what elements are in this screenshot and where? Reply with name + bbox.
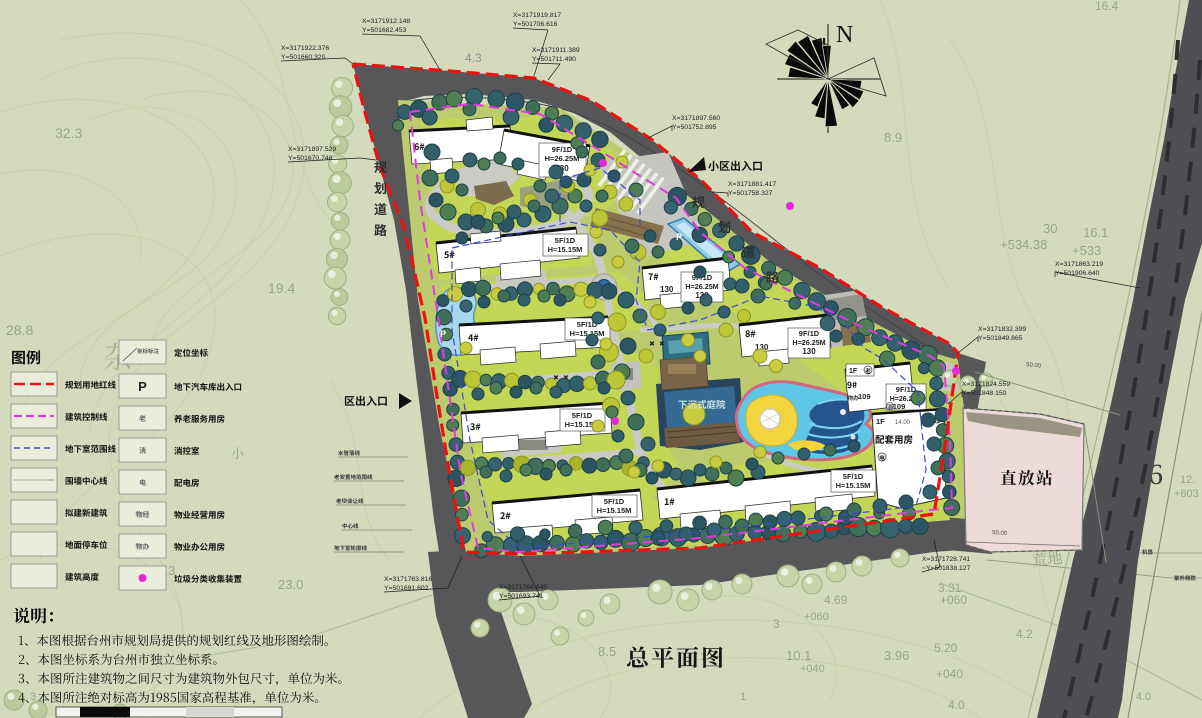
svg-text:Y=501752.895: Y=501752.895 — [672, 124, 717, 131]
svg-text:H=26.25M: H=26.25M — [685, 282, 718, 291]
svg-text:Y=501758.327: Y=501758.327 — [728, 190, 773, 197]
svg-text:130: 130 — [802, 347, 816, 356]
svg-text:X=3171922.376: X=3171922.376 — [281, 45, 329, 52]
svg-text:19.4: 19.4 — [268, 280, 295, 296]
svg-text:30: 30 — [1043, 221, 1057, 236]
svg-text:H=26.25M: H=26.25M — [792, 338, 825, 347]
svg-text:N: N — [836, 22, 853, 48]
svg-text:4.0: 4.0 — [948, 698, 965, 712]
svg-text:X=3171764.645: X=3171764.645 — [499, 584, 547, 591]
svg-text:5F/1D: 5F/1D — [843, 472, 864, 481]
svg-text:5F/1D: 5F/1D — [555, 236, 576, 245]
svg-text:+533: +533 — [1072, 243, 1101, 258]
svg-text:X=3171897.529: X=3171897.529 — [288, 146, 336, 153]
svg-text:X=3171832.399: X=3171832.399 — [978, 326, 1026, 333]
svg-text:4.2: 4.2 — [1016, 627, 1033, 641]
svg-text:✖: ✖ — [649, 341, 655, 348]
svg-text:~Y=501838.127: ~Y=501838.127 — [922, 565, 971, 572]
svg-text:✖: ✖ — [659, 341, 665, 348]
svg-text:Y=501706.616: Y=501706.616 — [513, 21, 558, 28]
svg-text:3.96: 3.96 — [884, 648, 909, 663]
svg-text:5F/1D: 5F/1D — [572, 411, 593, 420]
svg-text:Y=501711.490: Y=501711.490 — [532, 56, 576, 63]
svg-text:50.00: 50.00 — [992, 530, 1008, 537]
svg-text:X=3171911.389: X=3171911.389 — [532, 47, 580, 54]
svg-text:+040: +040 — [936, 667, 963, 681]
svg-text:23.0: 23.0 — [278, 577, 303, 592]
svg-text:8.5: 8.5 — [598, 644, 616, 659]
svg-text:+060: +060 — [940, 593, 967, 607]
svg-text:28.8: 28.8 — [6, 322, 33, 338]
svg-text:P: P — [676, 232, 682, 242]
svg-text:X=3171824.559: X=3171824.559 — [962, 381, 1010, 388]
svg-text:1F: 1F — [876, 417, 885, 426]
svg-text:H=15.15M: H=15.15M — [836, 481, 871, 490]
svg-text:1F: 1F — [849, 368, 858, 375]
svg-text:9F/1D: 9F/1D — [799, 329, 820, 338]
svg-text:16.1: 16.1 — [1083, 225, 1108, 240]
svg-text:10.1: 10.1 — [786, 648, 811, 663]
svg-text:+060: +060 — [804, 611, 829, 623]
svg-text:32.3: 32.3 — [55, 125, 82, 141]
svg-text:109: 109 — [858, 392, 871, 401]
svg-text:X=3171863.219: X=3171863.219 — [1055, 261, 1103, 268]
svg-text:5.20: 5.20 — [934, 641, 958, 655]
svg-text:16.4: 16.4 — [1095, 0, 1119, 13]
svg-text:4.3: 4.3 — [465, 51, 482, 65]
svg-text:109: 109 — [893, 402, 906, 411]
svg-text:+040: +040 — [800, 663, 825, 675]
svg-text:X=3171919.817: X=3171919.817 — [513, 12, 561, 19]
svg-text:P: P — [440, 329, 446, 339]
svg-text:H=15.15M: H=15.15M — [548, 245, 583, 254]
svg-text:X=3171881.417: X=3171881.417 — [728, 181, 776, 188]
svg-text:H=15.15M: H=15.15M — [597, 506, 632, 515]
svg-text:5F/1D: 5F/1D — [604, 497, 625, 506]
svg-text:130: 130 — [660, 285, 674, 294]
svg-text:12.: 12. — [1180, 474, 1195, 486]
svg-text:14.00: 14.00 — [895, 420, 911, 426]
svg-text:4.69: 4.69 — [824, 593, 848, 607]
svg-text:X=3171897.560: X=3171897.560 — [672, 115, 720, 122]
svg-text:X=3171912.148: X=3171912.148 — [362, 18, 410, 25]
svg-text:+603: +603 — [1174, 488, 1199, 500]
svg-text:X=3171763.816: X=3171763.816 — [384, 576, 432, 583]
svg-text:9F/1D: 9F/1D — [552, 145, 573, 154]
svg-text:3: 3 — [773, 617, 780, 631]
svg-text:X=3171728.741: X=3171728.741 — [922, 556, 970, 563]
svg-text:H=26.25M: H=26.25M — [545, 154, 580, 163]
svg-text:8.9: 8.9 — [884, 130, 902, 145]
svg-text:4.0: 4.0 — [1136, 691, 1151, 703]
svg-text:+534.38: +534.38 — [1000, 237, 1047, 252]
svg-text:Y=501682.453: Y=501682.453 — [362, 27, 407, 34]
svg-text:1: 1 — [740, 691, 746, 703]
svg-text:P: P — [138, 379, 147, 394]
svg-text:Y=501848.150: Y=501848.150 — [962, 390, 1007, 397]
svg-text:Y=501849.865: Y=501849.865 — [978, 335, 1023, 342]
